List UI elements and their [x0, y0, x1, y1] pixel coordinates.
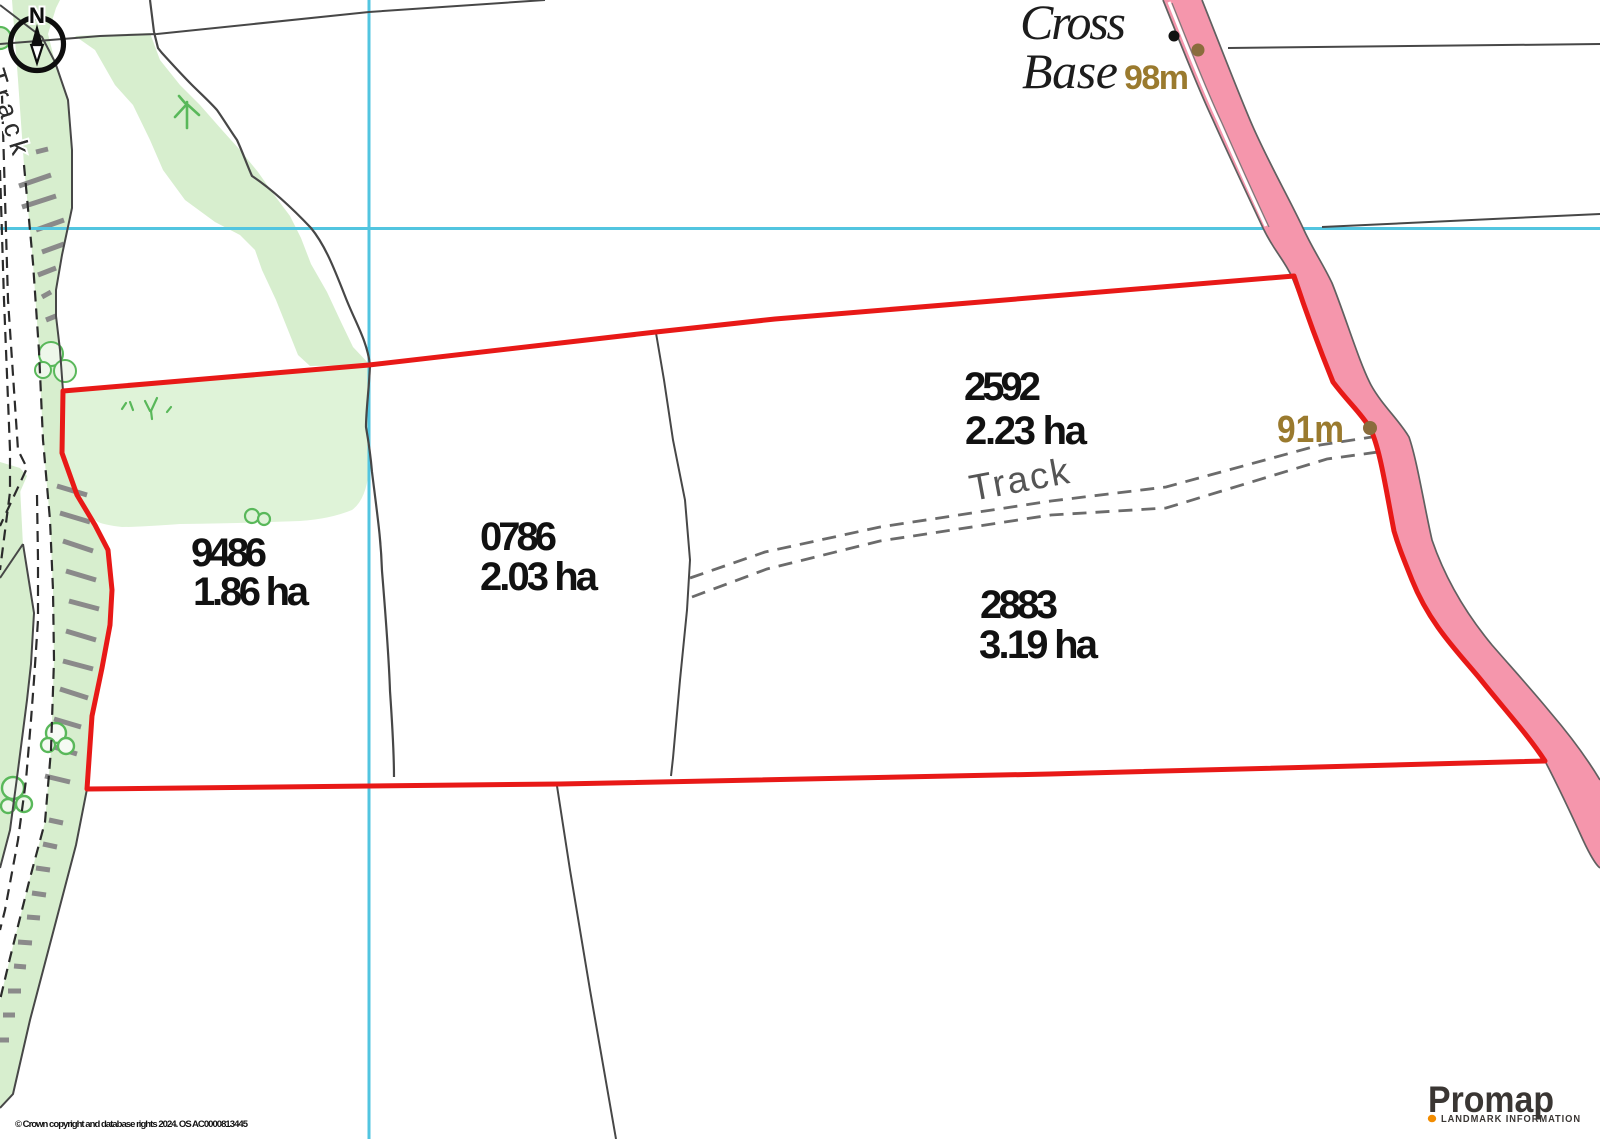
svg-text:2592: 2592 [964, 365, 1041, 409]
svg-text:0786: 0786 [480, 515, 557, 559]
svg-text:Base: Base [1022, 43, 1118, 99]
svg-text:91m: 91m [1277, 409, 1344, 451]
svg-text:N: N [29, 3, 45, 28]
svg-text:© Crown copyright and database: © Crown copyright and database rights 20… [15, 1119, 249, 1130]
svg-text:LANDMARK INFORMATION: LANDMARK INFORMATION [1441, 1114, 1581, 1125]
svg-text:2.23 ha: 2.23 ha [965, 409, 1088, 453]
svg-text:98m: 98m [1124, 59, 1189, 97]
svg-text:1.86 ha: 1.86 ha [193, 570, 310, 614]
svg-text:3.19 ha: 3.19 ha [979, 623, 1099, 667]
svg-text:2883: 2883 [980, 583, 1058, 627]
svg-text:9486: 9486 [191, 531, 267, 575]
svg-text:2.03 ha: 2.03 ha [480, 555, 599, 599]
